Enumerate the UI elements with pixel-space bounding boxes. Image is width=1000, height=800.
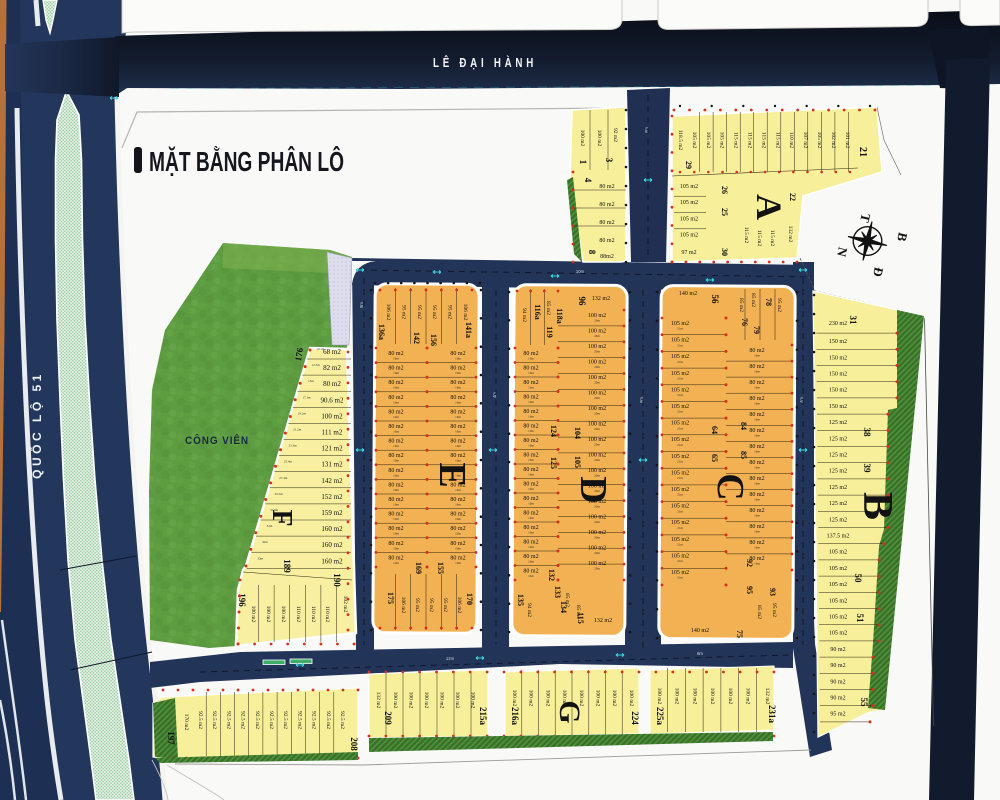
svg-text:115 m2: 115 m2: [760, 132, 766, 149]
svg-text:92.5 m2: 92.5 m2: [254, 711, 260, 729]
svg-text:93: 93: [768, 588, 777, 596]
svg-text:90 m2: 90 m2: [830, 696, 845, 702]
svg-text:175: 175: [386, 592, 395, 604]
svg-text:106 m2: 106 m2: [385, 304, 391, 321]
svg-text:31: 31: [848, 316, 858, 326]
svg-text:20m: 20m: [594, 350, 600, 354]
svg-text:111 m2: 111 m2: [322, 429, 343, 437]
svg-text:84: 84: [739, 422, 748, 430]
svg-text:115: 115: [576, 612, 585, 624]
svg-text:88m2: 88m2: [600, 254, 614, 260]
svg-text:92.5 m2: 92.5 m2: [225, 711, 231, 729]
svg-text:16m: 16m: [528, 429, 534, 433]
svg-text:140 m2: 140 m2: [691, 628, 709, 634]
svg-text:142 m2: 142 m2: [321, 477, 343, 485]
svg-text:231a: 231a: [767, 705, 777, 724]
svg-text:100 m2: 100 m2: [470, 692, 476, 709]
svg-text:95 m2: 95 m2: [830, 712, 845, 718]
svg-text:20m: 20m: [594, 443, 600, 447]
svg-text:12.5m: 12.5m: [312, 363, 321, 367]
svg-text:27.4m: 27.4m: [279, 476, 288, 480]
svg-text:80 m2: 80 m2: [599, 184, 614, 190]
svg-text:16m: 16m: [754, 562, 760, 566]
svg-text:21m: 21m: [677, 559, 683, 563]
svg-text:16m: 16m: [455, 430, 461, 434]
svg-text:20m: 20m: [594, 334, 600, 338]
svg-text:95 m2: 95 m2: [447, 305, 453, 319]
svg-text:16m: 16m: [754, 466, 760, 470]
svg-text:132 m2: 132 m2: [594, 618, 612, 624]
svg-text:101 m2: 101 m2: [844, 132, 850, 149]
svg-text:100 m2: 100 m2: [511, 690, 517, 707]
svg-text:100 m2: 100 m2: [392, 692, 398, 709]
svg-text:16m: 16m: [754, 402, 760, 406]
svg-text:21m: 21m: [677, 460, 683, 464]
svg-text:16m: 16m: [528, 458, 534, 462]
svg-text:100 m2: 100 m2: [528, 690, 534, 707]
svg-text:110 m2: 110 m2: [295, 606, 301, 623]
svg-text:160 m2: 160 m2: [321, 557, 343, 565]
svg-text:16m: 16m: [754, 370, 760, 374]
svg-text:32m: 32m: [262, 540, 268, 544]
svg-text:230 m2: 230 m2: [829, 321, 847, 327]
svg-text:16m: 16m: [455, 444, 461, 448]
svg-text:16m: 16m: [455, 561, 461, 565]
svg-text:105 m2: 105 m2: [680, 216, 698, 222]
svg-text:16m: 16m: [393, 444, 399, 448]
svg-text:16m: 16m: [393, 561, 399, 565]
svg-text:121 m2: 121 m2: [321, 445, 343, 453]
svg-text:C: C: [709, 473, 751, 500]
svg-text:16m: 16m: [455, 503, 461, 507]
svg-text:16m: 16m: [528, 574, 534, 578]
svg-text:16m: 16m: [393, 503, 399, 507]
svg-text:104: 104: [573, 427, 582, 439]
svg-text:MẶT BẰNG PHÂN LÔ: MẶT BẰNG PHÂN LÔ: [149, 145, 344, 177]
svg-text:55: 55: [859, 698, 869, 708]
svg-text:131 m2: 131 m2: [321, 461, 343, 469]
svg-text:20m: 20m: [594, 505, 600, 509]
svg-text:100 m2: 100 m2: [439, 692, 445, 709]
svg-text:105 m2: 105 m2: [829, 598, 847, 604]
svg-text:150 m2: 150 m2: [829, 339, 847, 345]
svg-text:95 m2: 95 m2: [776, 298, 782, 312]
svg-text:16m: 16m: [393, 357, 399, 361]
svg-text:110 m2: 110 m2: [788, 132, 794, 149]
svg-text:16m: 16m: [455, 532, 461, 536]
svg-text:150 m2: 150 m2: [829, 388, 847, 394]
svg-text:96: 96: [577, 297, 587, 307]
svg-text:118a: 118a: [555, 308, 564, 324]
svg-text:16m: 16m: [393, 415, 399, 419]
svg-text:90 m2: 90 m2: [830, 663, 845, 669]
svg-text:21m: 21m: [677, 576, 683, 580]
svg-text:134: 134: [559, 601, 568, 613]
svg-text:105 m2: 105 m2: [680, 233, 698, 239]
svg-text:21m: 21m: [677, 360, 683, 364]
svg-text:16m: 16m: [393, 488, 399, 492]
svg-text:25.4m: 25.4m: [284, 460, 293, 464]
svg-text:16m: 16m: [528, 386, 534, 390]
svg-text:208: 208: [349, 737, 359, 751]
svg-text:95 m2: 95 m2: [771, 603, 777, 617]
svg-text:125 m2: 125 m2: [829, 469, 847, 475]
svg-text:16m: 16m: [393, 546, 399, 550]
svg-text:95 m2: 95 m2: [416, 305, 422, 319]
svg-text:16m: 16m: [528, 357, 534, 361]
svg-text:16m: 16m: [455, 357, 461, 361]
svg-text:115 m2: 115 m2: [743, 227, 749, 244]
svg-text:85 m2: 85 m2: [545, 301, 551, 315]
svg-text:16m: 16m: [528, 531, 534, 535]
svg-text:125 m2: 125 m2: [829, 517, 847, 523]
svg-text:90 m2: 90 m2: [830, 647, 845, 653]
svg-text:32m: 32m: [257, 556, 263, 560]
svg-text:115 m2: 115 m2: [769, 230, 775, 247]
svg-text:118.5 m2: 118.5 m2: [677, 130, 683, 151]
svg-text:132 m2: 132 m2: [592, 296, 610, 302]
svg-text:21m: 21m: [677, 327, 683, 331]
svg-text:110 m2: 110 m2: [324, 606, 330, 623]
svg-text:92.5 m2: 92.5 m2: [268, 711, 274, 729]
svg-text:115 m2: 115 m2: [774, 132, 780, 149]
svg-text:100 m2: 100 m2: [611, 690, 617, 707]
svg-text:92.5 m2: 92.5 m2: [339, 711, 345, 729]
svg-text:12m: 12m: [446, 656, 455, 661]
svg-text:20m: 20m: [594, 381, 600, 385]
svg-text:68 m2: 68 m2: [323, 348, 341, 356]
svg-text:97 m2: 97 m2: [681, 250, 696, 256]
svg-text:8: 8: [587, 250, 597, 255]
svg-text:94 m2: 94 m2: [521, 308, 527, 322]
svg-text:51: 51: [855, 614, 865, 624]
svg-text:119: 119: [545, 326, 554, 338]
svg-text:90.6 m2: 90.6 m2: [321, 396, 344, 404]
svg-text:100 m2: 100 m2: [265, 606, 271, 623]
svg-text:21m: 21m: [677, 443, 683, 447]
svg-text:80 m2: 80 m2: [599, 202, 614, 208]
svg-text:16m: 16m: [455, 517, 461, 521]
svg-text:16m: 16m: [393, 459, 399, 463]
svg-text:20m: 20m: [594, 520, 600, 524]
svg-text:16m: 16m: [528, 444, 534, 448]
svg-text:64: 64: [710, 426, 719, 434]
svg-text:16m: 16m: [528, 545, 534, 549]
svg-text:141a: 141a: [464, 322, 473, 338]
svg-text:209: 209: [383, 711, 393, 725]
svg-text:16m: 16m: [754, 354, 760, 358]
svg-text:39: 39: [862, 464, 872, 474]
svg-text:170 m2: 170 m2: [183, 714, 189, 731]
svg-text:85: 85: [739, 451, 748, 459]
svg-text:21: 21: [857, 147, 868, 157]
svg-text:105 m2: 105 m2: [719, 132, 725, 149]
svg-text:133: 133: [553, 586, 562, 598]
svg-text:92.5 m2: 92.5 m2: [197, 711, 203, 729]
svg-text:95 m2: 95 m2: [400, 305, 406, 319]
svg-text:16m: 16m: [393, 473, 399, 477]
svg-text:16m: 16m: [393, 517, 399, 521]
svg-text:216a: 216a: [510, 707, 520, 726]
svg-text:90 m2: 90 m2: [830, 679, 845, 685]
svg-text:135: 135: [516, 594, 525, 606]
svg-text:B: B: [854, 492, 900, 520]
svg-text:1: 1: [578, 160, 588, 165]
svg-text:125 m2: 125 m2: [829, 436, 847, 442]
svg-text:100 m2: 100 m2: [628, 690, 634, 707]
svg-text:3: 3: [604, 158, 614, 163]
svg-text:21m: 21m: [677, 426, 683, 430]
svg-text:106 m2: 106 m2: [456, 597, 462, 614]
svg-text:100 m2: 100 m2: [674, 688, 680, 705]
svg-text:16m: 16m: [754, 514, 760, 518]
svg-text:20m: 20m: [594, 536, 600, 540]
svg-text:16m: 16m: [528, 415, 534, 419]
svg-text:30: 30: [720, 248, 729, 256]
svg-text:16m: 16m: [754, 482, 760, 486]
svg-text:92.5 m2: 92.5 m2: [240, 711, 246, 729]
svg-text:16m: 16m: [528, 487, 534, 491]
svg-text:20m: 20m: [594, 412, 600, 416]
svg-text:105 m2: 105 m2: [680, 184, 698, 190]
svg-text:125: 125: [549, 457, 558, 469]
svg-text:125 m2: 125 m2: [829, 501, 847, 507]
svg-text:21m: 21m: [677, 476, 683, 480]
svg-text:100 m2: 100 m2: [321, 412, 343, 420]
svg-text:169: 169: [414, 562, 423, 574]
svg-text:225a: 225a: [655, 707, 665, 726]
svg-text:17.1m: 17.1m: [302, 395, 311, 399]
svg-text:16m: 16m: [393, 386, 399, 390]
svg-text:100 m2: 100 m2: [423, 692, 429, 709]
svg-text:76: 76: [740, 318, 749, 326]
svg-text:16m: 16m: [393, 400, 399, 404]
svg-text:224: 224: [630, 711, 640, 725]
svg-text:75: 75: [735, 630, 744, 638]
svg-text:21m: 21m: [677, 393, 683, 397]
svg-text:160 m2: 160 m2: [321, 525, 343, 533]
svg-text:100 m2: 100 m2: [709, 688, 715, 705]
svg-text:16m: 16m: [393, 371, 399, 375]
svg-text:150 m2: 150 m2: [829, 404, 847, 410]
svg-text:A: A: [749, 194, 789, 220]
svg-text:16m: 16m: [393, 430, 399, 434]
svg-text:106 m2: 106 m2: [400, 597, 406, 614]
svg-text:92: 92: [745, 559, 754, 567]
svg-text:92.5 m2: 92.5 m2: [282, 711, 288, 729]
svg-text:82 m2: 82 m2: [323, 364, 341, 372]
svg-text:95 m2: 95 m2: [414, 598, 420, 612]
svg-text:16m: 16m: [754, 434, 760, 438]
svg-text:F: F: [266, 509, 297, 526]
svg-text:20m: 20m: [594, 567, 600, 571]
svg-text:19.2m: 19.2m: [298, 411, 307, 415]
svg-text:16m: 16m: [455, 386, 461, 390]
svg-text:160 m2: 160 m2: [321, 541, 343, 549]
svg-text:56: 56: [710, 295, 720, 305]
svg-text:16m: 16m: [754, 386, 760, 390]
svg-text:92.5 m2: 92.5 m2: [325, 711, 331, 729]
svg-text:16m: 16m: [455, 546, 461, 550]
svg-text:92.5 m2: 92.5 m2: [311, 711, 317, 729]
svg-text:152 m2: 152 m2: [321, 493, 343, 501]
svg-text:136a: 136a: [377, 324, 386, 340]
svg-text:16m: 16m: [528, 371, 534, 375]
svg-text:16m: 16m: [528, 516, 534, 520]
svg-text:132 m2: 132 m2: [787, 226, 793, 243]
svg-text:21m: 21m: [677, 493, 683, 497]
svg-text:85 m2: 85 m2: [738, 298, 744, 312]
svg-text:100 m2: 100 m2: [579, 130, 585, 147]
svg-text:189: 189: [282, 559, 292, 573]
svg-text:21m: 21m: [677, 509, 683, 513]
svg-text:142: 142: [412, 332, 421, 344]
svg-text:105 m2: 105 m2: [829, 566, 847, 572]
svg-text:29: 29: [684, 161, 693, 169]
svg-text:105 m2: 105 m2: [816, 132, 822, 149]
svg-text:20m: 20m: [594, 319, 600, 323]
svg-text:105 m2: 105 m2: [705, 132, 711, 149]
svg-text:115 m2: 115 m2: [733, 132, 739, 149]
svg-text:150 m2: 150 m2: [829, 372, 847, 378]
svg-text:132: 132: [547, 569, 556, 581]
svg-text:21m: 21m: [677, 343, 683, 347]
svg-text:100 m2: 100 m2: [250, 606, 256, 623]
svg-text:95 m2: 95 m2: [428, 598, 434, 612]
svg-text:8m: 8m: [359, 302, 364, 308]
svg-text:85 m2: 85 m2: [750, 293, 756, 307]
svg-text:25: 25: [720, 208, 729, 216]
svg-text:80 m2: 80 m2: [599, 220, 614, 226]
svg-text:100 m2: 100 m2: [454, 692, 460, 709]
svg-text:LÊ ĐẠI HÀNH: LÊ ĐẠI HÀNH: [433, 55, 537, 70]
svg-text:6m: 6m: [697, 651, 703, 656]
svg-text:D: D: [572, 476, 614, 503]
svg-text:105 m2: 105 m2: [829, 582, 847, 588]
svg-text:15m: 15m: [308, 379, 314, 383]
svg-text:102 m2: 102 m2: [830, 132, 836, 149]
svg-text:125 m2: 125 m2: [829, 485, 847, 491]
svg-text:110 m2: 110 m2: [310, 606, 316, 623]
svg-text:156: 156: [429, 334, 438, 346]
svg-text:16m: 16m: [455, 400, 461, 404]
svg-text:21m: 21m: [677, 543, 683, 547]
svg-text:170: 170: [465, 593, 474, 605]
svg-text:21m: 21m: [677, 377, 683, 381]
svg-text:80 m2: 80 m2: [599, 238, 614, 244]
svg-text:50: 50: [853, 574, 863, 584]
svg-text:190: 190: [332, 573, 342, 587]
svg-text:16m: 16m: [455, 371, 461, 375]
svg-text:100 m2: 100 m2: [408, 692, 414, 709]
svg-text:16m: 16m: [754, 546, 760, 550]
svg-text:107 m2: 107 m2: [802, 132, 808, 149]
svg-text:20m: 20m: [594, 365, 600, 369]
svg-text:16m: 16m: [754, 530, 760, 534]
svg-text:140 m2: 140 m2: [679, 291, 697, 297]
svg-text:16m: 16m: [528, 473, 534, 477]
svg-text:16m: 16m: [754, 418, 760, 422]
svg-text:79: 79: [752, 326, 761, 334]
svg-text:80 m2: 80 m2: [323, 380, 341, 388]
svg-text:159 m2: 159 m2: [321, 509, 343, 517]
svg-text:95 m2: 95 m2: [442, 598, 448, 612]
svg-text:G: G: [553, 700, 586, 723]
svg-text:125 m2: 125 m2: [829, 420, 847, 426]
svg-text:155: 155: [436, 562, 445, 574]
svg-text:20m: 20m: [594, 551, 600, 555]
svg-text:38: 38: [862, 428, 872, 438]
svg-text:16m: 16m: [455, 488, 461, 492]
svg-text:78: 78: [764, 298, 773, 306]
svg-text:100 m2: 100 m2: [544, 690, 550, 707]
svg-text:20m: 20m: [594, 458, 600, 462]
svg-text:100 m2: 100 m2: [280, 606, 286, 623]
svg-text:29.5m: 29.5m: [275, 492, 284, 496]
svg-text:16m: 16m: [528, 400, 534, 404]
svg-text:100 m2: 100 m2: [595, 690, 601, 707]
svg-text:95 m2: 95 m2: [431, 305, 437, 319]
svg-text:116a: 116a: [533, 304, 542, 320]
svg-text:105 m2: 105 m2: [829, 631, 847, 637]
svg-text:105 m2: 105 m2: [691, 132, 697, 149]
svg-text:20m: 20m: [594, 396, 600, 400]
svg-text:105: 105: [573, 456, 582, 468]
svg-text:65: 65: [710, 454, 719, 462]
svg-text:21.2m: 21.2m: [293, 428, 302, 432]
svg-text:132 m2: 132 m2: [764, 688, 770, 705]
svg-text:16m: 16m: [754, 450, 760, 454]
svg-text:E: E: [431, 462, 473, 487]
svg-text:16m: 16m: [455, 415, 461, 419]
svg-text:CÔNG VIÊN: CÔNG VIÊN: [185, 434, 249, 447]
svg-text:100 m2: 100 m2: [656, 688, 662, 705]
svg-text:215a: 215a: [478, 707, 488, 726]
svg-text:100 m2: 100 m2: [745, 688, 751, 705]
svg-text:115 m2: 115 m2: [756, 230, 762, 247]
svg-text:10.1m: 10.1m: [316, 347, 325, 351]
svg-text:21m: 21m: [677, 410, 683, 414]
svg-text:92 m2: 92 m2: [612, 128, 618, 142]
svg-text:4: 4: [583, 178, 593, 183]
svg-text:106 m2: 106 m2: [462, 304, 468, 321]
svg-text:20m: 20m: [594, 427, 600, 431]
svg-text:85 m2: 85 m2: [756, 605, 762, 619]
svg-text:QUỐC LỘ 51: QUỐC LỘ 51: [29, 371, 44, 479]
svg-text:26: 26: [720, 186, 729, 194]
svg-text:16m: 16m: [528, 502, 534, 506]
svg-text:16m: 16m: [754, 498, 760, 502]
svg-text:23.3m: 23.3m: [289, 444, 298, 448]
svg-text:115 m2: 115 m2: [747, 132, 753, 149]
svg-text:92.5 m2: 92.5 m2: [211, 711, 217, 729]
svg-text:125 m2: 125 m2: [829, 453, 847, 459]
svg-text:137.5 m2: 137.5 m2: [827, 534, 850, 540]
svg-text:100 m2: 100 m2: [727, 688, 733, 705]
svg-text:94 m2: 94 m2: [526, 603, 532, 617]
svg-text:105 m2: 105 m2: [829, 615, 847, 621]
svg-text:105 m2: 105 m2: [829, 550, 847, 556]
svg-text:21m: 21m: [677, 526, 683, 530]
svg-text:16m: 16m: [528, 560, 534, 564]
svg-text:95: 95: [745, 586, 754, 594]
svg-text:150 m2: 150 m2: [829, 355, 847, 361]
svg-text:22: 22: [788, 193, 797, 201]
svg-text:197: 197: [166, 731, 176, 745]
svg-text:16m: 16m: [393, 532, 399, 536]
svg-text:100 m2: 100 m2: [691, 688, 697, 705]
svg-text:100 m2: 100 m2: [596, 130, 602, 147]
